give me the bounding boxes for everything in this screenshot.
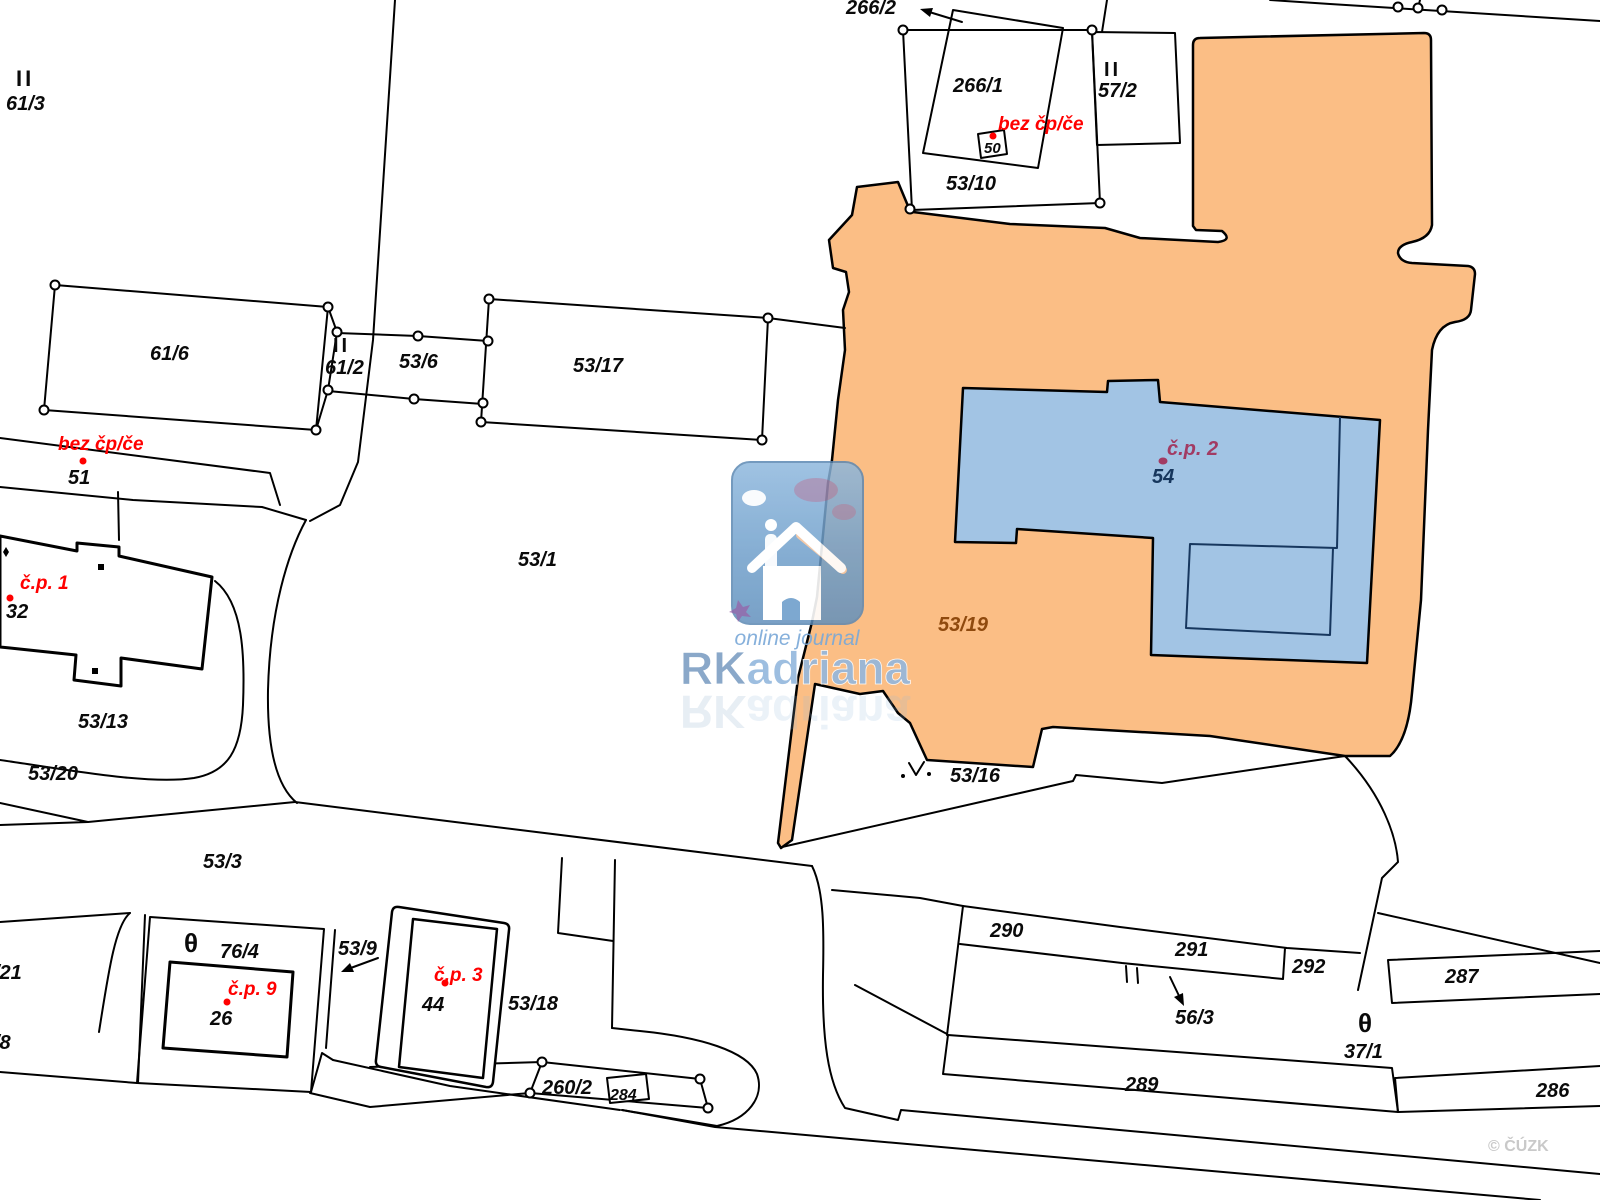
strip-53-9 [311, 930, 335, 1092]
parcel-label: 53/19 [938, 614, 989, 636]
parcel-label: 53/18 [508, 993, 559, 1015]
parcel-label: II [1104, 59, 1121, 81]
boundary-vertex-circle [899, 26, 908, 35]
parcel-label: 53/17 [573, 355, 624, 377]
boundary-vertex-circle [414, 332, 423, 341]
logo-map-patch [794, 478, 838, 502]
parcel-label: 26 [209, 1008, 233, 1030]
parcel-label: 32 [6, 601, 28, 623]
parcel-edge-curve [99, 913, 130, 1032]
parcel-label: 287 [1444, 966, 1479, 988]
parcel-label: 61/3 [6, 93, 45, 115]
road-line [295, 802, 812, 866]
arrow-266-2-head [920, 8, 933, 17]
parcel-label: 266/2 [845, 0, 896, 19]
parcel-label: 53/3 [203, 851, 242, 873]
boundary-vertex-circle [485, 295, 494, 304]
logo-i-dot [765, 519, 777, 531]
parcel-label: 266/1 [952, 75, 1003, 97]
parcel-label: bez čp/če [58, 434, 144, 455]
watermark-brand-reflection: RKadriana [680, 686, 910, 738]
building-32-vent [92, 668, 98, 674]
parcel-289 [943, 1035, 1398, 1112]
arrow-56-3-head [1174, 993, 1184, 1006]
building-32-outline [0, 536, 212, 686]
parcel-label: 57/2 [1098, 80, 1137, 102]
parcel-label: /21 [0, 962, 22, 984]
boundary-vertex-circle [1088, 26, 1097, 35]
road-line [832, 890, 963, 906]
parcel-label: 37/1 [1344, 1041, 1383, 1063]
boundary-vertex-circle [51, 281, 60, 290]
boundary-vertex-circle [758, 436, 767, 445]
road-line [0, 487, 306, 520]
boundary-vertex-circle [312, 426, 321, 435]
road-line [0, 802, 295, 825]
boundary-vertex-circle [906, 205, 915, 214]
parcel-label: 56/3 [1175, 1007, 1214, 1029]
building-32-vent [98, 564, 104, 570]
parcel-287 [1388, 951, 1600, 1003]
parcel-label: 53/1 [518, 549, 557, 571]
building-point-marker [990, 133, 997, 140]
boundary-vertex-circle [324, 303, 333, 312]
parcel-label: 53/20 [28, 763, 78, 785]
parcel-label: č.p. 9 [228, 979, 277, 1000]
parcel-label: 61/2 [325, 357, 364, 379]
boundary-line [855, 985, 947, 1034]
scrub-symbol-dot [901, 774, 905, 778]
parcel-label: 286 [1535, 1080, 1570, 1102]
boundary-vertex-circle [1096, 199, 1105, 208]
boundary-line [768, 318, 845, 328]
parcel-label: 53/6 [399, 351, 439, 373]
boundary-vertex-circle [764, 314, 773, 323]
boundary-vertex-circle [477, 418, 486, 427]
parcel-label: 44 [421, 994, 444, 1016]
parcel-label: 291 [1174, 939, 1208, 961]
boundary-vertex-circle [40, 406, 49, 415]
road-line [782, 756, 1345, 847]
road-curve-outer [268, 520, 306, 803]
parcel-label: 260/2 [541, 1077, 592, 1099]
parcel-label: θ [184, 928, 198, 958]
parcel-label: 76/4 [220, 941, 259, 963]
boundary-vertex-circle [1414, 4, 1423, 13]
scrub-symbol [909, 762, 924, 775]
hatch-56-3 [1126, 966, 1138, 983]
cadastral-map-viewport: online journal RKadriana RKadriana II61/… [0, 0, 1600, 1200]
parcel-label: 53/9 [338, 938, 378, 960]
watermark-logo [729, 462, 863, 624]
parcel-label: II [16, 66, 34, 91]
parcel-label: 54 [1152, 466, 1174, 488]
road-curve [1345, 756, 1398, 990]
boundary-vertex-circle [696, 1075, 705, 1084]
road-line [0, 913, 130, 922]
building-44-inner [399, 919, 497, 1078]
boundary-line [1102, 0, 1107, 32]
logo-cloud [742, 490, 766, 506]
boundary-line [1270, 0, 1600, 21]
boundary-vertex-circle [410, 395, 419, 404]
boundary-line [558, 858, 615, 1028]
parcel-label: 284 [609, 1087, 637, 1104]
parcel-label: 53/10 [946, 173, 996, 195]
boundary-vertex-circle [704, 1104, 713, 1113]
building-point-marker [80, 458, 87, 465]
parcel-label: č.p. 2 [1167, 438, 1218, 460]
parcel-label: 53/13 [78, 711, 128, 733]
cadastral-map: online journal RKadriana RKadriana II61/… [0, 0, 1600, 1200]
boundary-vertex-circle [1394, 3, 1403, 12]
parcel-label: θ [1358, 1008, 1372, 1038]
parcel-label: 53/16 [950, 765, 1001, 787]
parcel-label: 50 [984, 140, 1001, 157]
boundary-vertex-circle [324, 386, 333, 395]
scrub-symbol-dot [927, 772, 931, 776]
boundary-vertex-circle [484, 337, 493, 346]
boundary-line [310, 0, 395, 521]
parcel-label: 292 [1291, 956, 1325, 978]
logo-house-door [782, 598, 800, 620]
boundary-vertex-circle [1438, 6, 1447, 15]
boundary-vertex-circle [479, 399, 488, 408]
boundary-line [118, 492, 119, 540]
parcel-label: © ČÚZK [1488, 1136, 1549, 1155]
parcel-label: č.p. 3 [434, 965, 483, 986]
parcel-label: 61/6 [150, 343, 190, 365]
parcel-label: /8 [0, 1032, 12, 1054]
parcel-label: II [333, 335, 350, 357]
parcel-label: 51 [68, 467, 90, 489]
boundary-vertex-circle [538, 1058, 547, 1067]
parcel-53-17 [481, 299, 768, 440]
parcel-label: bez čp/če [998, 114, 1084, 135]
logo-map-patch [832, 504, 856, 520]
boundary-vertex-circle [526, 1089, 535, 1098]
parcel-label: 290 [989, 920, 1023, 942]
parcel-label: 289 [1124, 1074, 1159, 1096]
parcel-label: č.p. 1 [20, 573, 69, 594]
